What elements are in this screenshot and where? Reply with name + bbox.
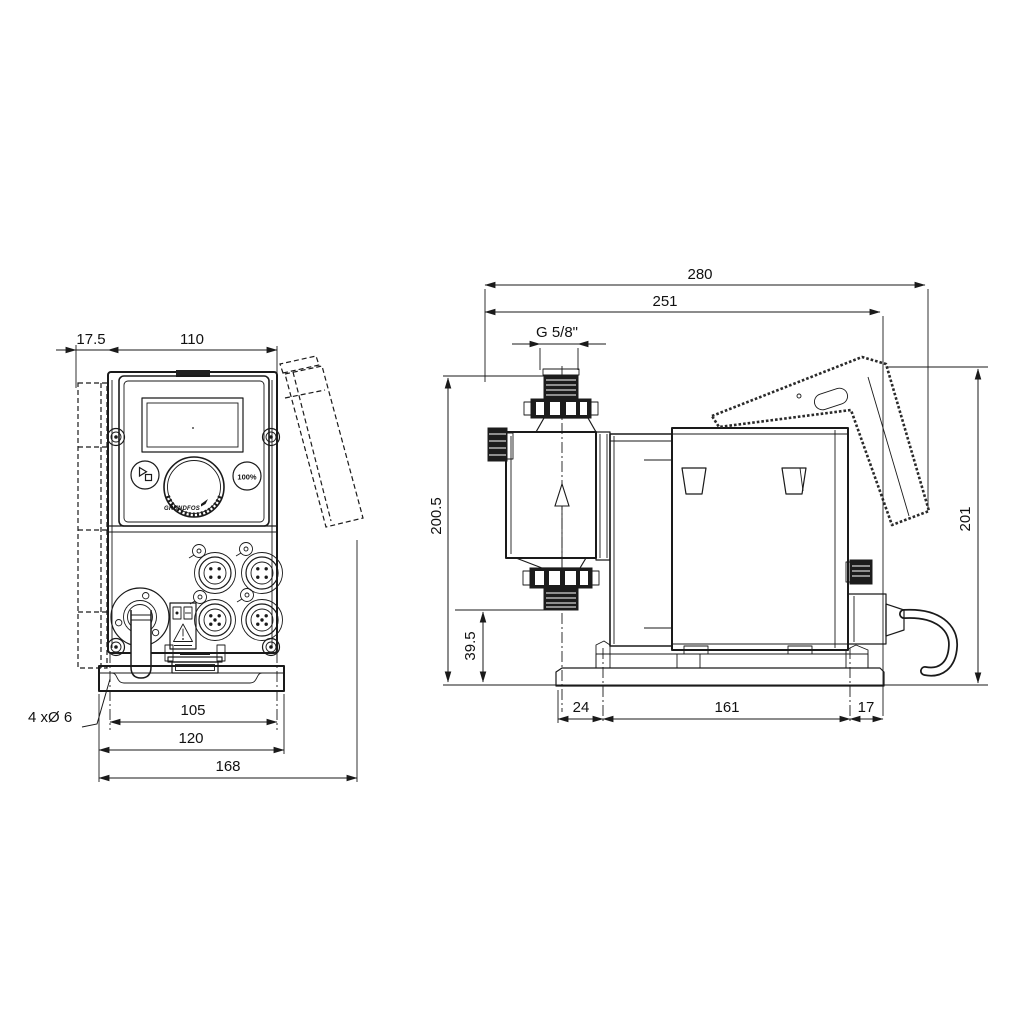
deaeration-knob[interactable] (488, 428, 513, 461)
holes-label: 4 xØ 6 (28, 709, 72, 726)
mounting-holes-callout: 4 xØ 6 (28, 679, 110, 727)
discharge-connection (524, 369, 598, 432)
wall-plate-hidden (78, 383, 107, 668)
max-capacity-button[interactable]: 100% (233, 462, 261, 490)
m12-connector[interactable] (195, 553, 236, 594)
dim-label: 201 (957, 506, 974, 531)
pump-housing-side (610, 428, 848, 650)
dim-hole-pitch: 105 (110, 702, 277, 722)
mounting-slot (682, 468, 706, 494)
brand-text: GRUNDFOS (164, 506, 200, 512)
dim-label: 168 (215, 758, 240, 775)
power-cable-side (848, 594, 953, 672)
signal-connectors (189, 543, 283, 641)
pump-dimensional-drawing: 100% GRUNDFOS (0, 0, 1024, 1024)
dim-label: 24 (573, 699, 590, 716)
dim-label: 251 (652, 293, 677, 310)
dim-connection-thread: G 5/8" (512, 324, 606, 370)
control-panel: 100% GRUNDFOS (119, 376, 269, 526)
mounting-slot (782, 468, 806, 494)
dim-label: 200.5 (428, 497, 445, 535)
max-capacity-label: 100% (237, 473, 257, 482)
dim-label: 17 (858, 699, 875, 716)
dim-label: 280 (687, 266, 712, 283)
dim-label: 39.5 (462, 631, 479, 660)
dim-base-rear-offset: 17 (850, 699, 883, 719)
bracket-swung-hidden (280, 356, 363, 527)
front-view: 100% GRUNDFOS (28, 331, 363, 782)
dim-wall-plate-depth: 17.5 (56, 331, 108, 388)
start-stop-button[interactable] (131, 461, 159, 489)
dim-label: 120 (178, 730, 203, 747)
m12-connector[interactable] (195, 600, 236, 641)
dim-label: 161 (714, 699, 739, 716)
dim-height-to-connection: 200.5 (428, 376, 545, 682)
power-cable-gland (111, 588, 169, 678)
dim-label: 17.5 (76, 331, 105, 348)
warning-label (170, 603, 196, 649)
dim-width: 110 (108, 331, 277, 428)
suction-connection (523, 568, 599, 610)
dim-label: 110 (180, 331, 204, 348)
dim-connection-height: 39.5 (455, 610, 546, 682)
display (142, 398, 243, 452)
rear-connector (846, 560, 872, 584)
screw-icon (108, 429, 125, 446)
dim-overall-height: 201 (888, 367, 988, 683)
dim-label: G 5/8" (536, 324, 578, 341)
side-view: 280 251 G 5/8" 200.5 39.5 201 (428, 266, 988, 723)
wall-bracket-side (712, 357, 929, 525)
dim-label: 105 (180, 702, 205, 719)
